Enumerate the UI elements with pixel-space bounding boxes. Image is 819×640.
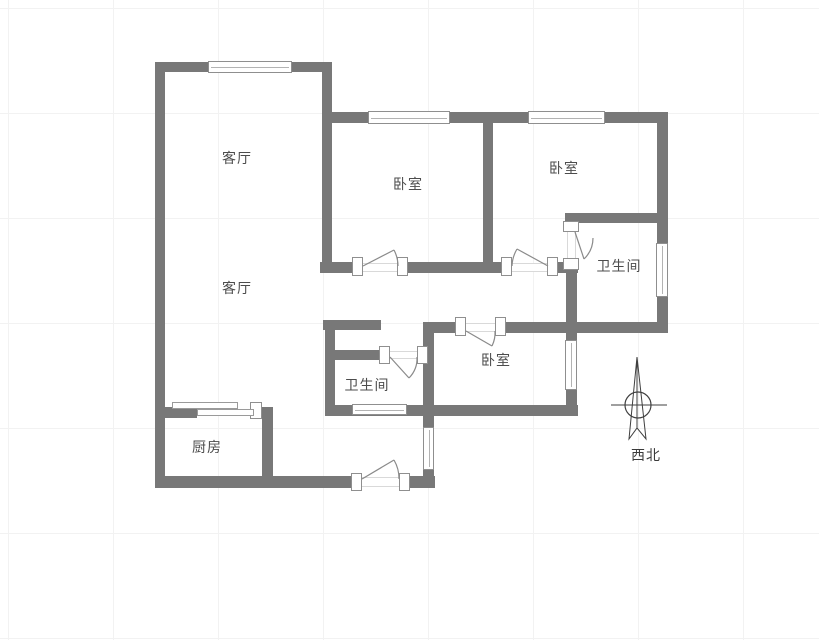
door-swing-entry <box>362 460 399 479</box>
compass-direction-label: 西北 <box>631 445 661 465</box>
room-label-bathroom-upper: 卫生间 <box>597 256 642 276</box>
floor-plan: 客厅 客厅 卧室 卧室 卧室 卫生间 卫生间 厨房 西北 <box>0 0 819 640</box>
room-label-kitchen: 厨房 <box>192 437 222 457</box>
door-swing-bedroom-right <box>512 249 548 266</box>
compass-icon <box>611 357 667 439</box>
door-swing-bathroom-lower <box>390 357 417 378</box>
room-label-bedroom-middle: 卧室 <box>481 350 511 370</box>
door-swing-bedroom-middle <box>466 331 495 346</box>
room-label-living-lower: 客厅 <box>222 278 252 298</box>
room-label-bedroom-left: 卧室 <box>393 174 423 194</box>
door-swing-bedroom-left <box>363 250 398 266</box>
room-label-bathroom-lower: 卫生间 <box>345 375 390 395</box>
room-label-bedroom-right: 卧室 <box>549 158 579 178</box>
door-swing-overlay <box>0 0 819 640</box>
door-swing-bathroom-upper <box>575 232 593 259</box>
room-label-living-upper: 客厅 <box>222 148 252 168</box>
